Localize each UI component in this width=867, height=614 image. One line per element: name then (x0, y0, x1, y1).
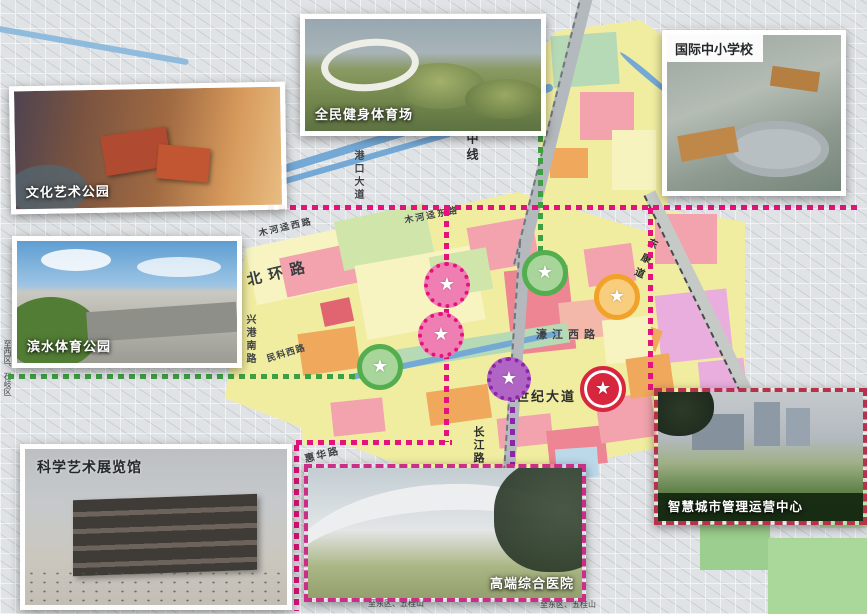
planning-map: 北环路 木河迳西路 木河迳东路 港口大道 中线 兴港南路 民科西路 濠江西路 世… (0, 0, 867, 614)
inset-school: 国际中小学校 (662, 30, 846, 196)
connector-purple-hospital (510, 396, 515, 466)
tower-shape (754, 402, 780, 446)
inset-label-smart-city: 智慧城市管理运营中心 (668, 496, 803, 515)
road-label-haojiang-west: 濠江西路 (536, 326, 600, 342)
connector-pink-vertical-right (648, 208, 653, 392)
zoning-patch (612, 130, 656, 190)
inset-smart-city: 智慧城市管理运营中心 (654, 388, 867, 525)
zoning-patch (297, 326, 360, 376)
inset-culture-park: 文化艺术公园 (9, 82, 287, 215)
star-icon: ★ (595, 380, 611, 398)
star-icon: ★ (433, 326, 449, 344)
inset-hospital: 高端综合医院 (304, 464, 586, 602)
inset-stadium: 全民健身体育场 (300, 14, 546, 136)
star-marker-green-1: ★ (522, 250, 568, 296)
star-icon: ★ (537, 264, 553, 282)
inset-label-school: 国际中小学校 (667, 35, 763, 62)
inset-label-stadium: 全民健身体育场 (315, 104, 413, 123)
zoning-patch (330, 397, 385, 436)
inset-label-waterfront-park: 滨水体育公园 (27, 336, 111, 355)
hill-shape (12, 297, 99, 368)
cloud-shape (41, 249, 111, 271)
tower-shape (786, 408, 810, 446)
star-icon: ★ (609, 288, 625, 306)
building-shape (73, 494, 257, 576)
star-marker-red: ★ (580, 366, 626, 412)
park-patch (768, 538, 867, 614)
plaza-shape (725, 121, 829, 177)
road-label-gangkou: 港口大道 (350, 150, 365, 202)
crowd-texture (25, 569, 287, 605)
connector-green-waterfront (8, 374, 370, 379)
star-marker-pink-1: ★ (424, 262, 470, 308)
connector-pink-science-vertical (294, 445, 299, 611)
zoning-patch (550, 148, 588, 178)
star-marker-green-2: ★ (357, 344, 403, 390)
road-label-xinggang-south: 兴港南路 (242, 314, 257, 366)
star-icon: ★ (439, 276, 455, 294)
inset-science-hall: 科学艺术展览馆 (20, 444, 292, 610)
inset-label-culture-park: 文化艺术公园 (26, 181, 110, 201)
star-marker-orange: ★ (594, 274, 640, 320)
building-shape (156, 144, 211, 182)
cloud-shape (137, 257, 221, 277)
star-icon: ★ (372, 358, 388, 376)
connector-pink-horizontal (268, 205, 860, 210)
inset-label-science-hall: 科学艺术展览馆 (37, 457, 142, 477)
inset-waterfront-park: 滨水体育公园 (12, 236, 242, 368)
tree-shape (494, 464, 586, 572)
connector-green-stadium (538, 136, 543, 256)
star-icon: ★ (501, 370, 517, 388)
star-marker-pink-2: ★ (418, 312, 464, 358)
road-label-zhongxian: 中线 (464, 132, 481, 164)
road-label-changjiang: 长江路 (470, 426, 486, 465)
connector-pink-science (296, 440, 452, 445)
star-marker-purple: ★ (487, 357, 531, 401)
mound-shape (465, 79, 545, 119)
park-patch (700, 524, 770, 570)
inset-label-hospital: 高端综合医院 (490, 573, 574, 592)
